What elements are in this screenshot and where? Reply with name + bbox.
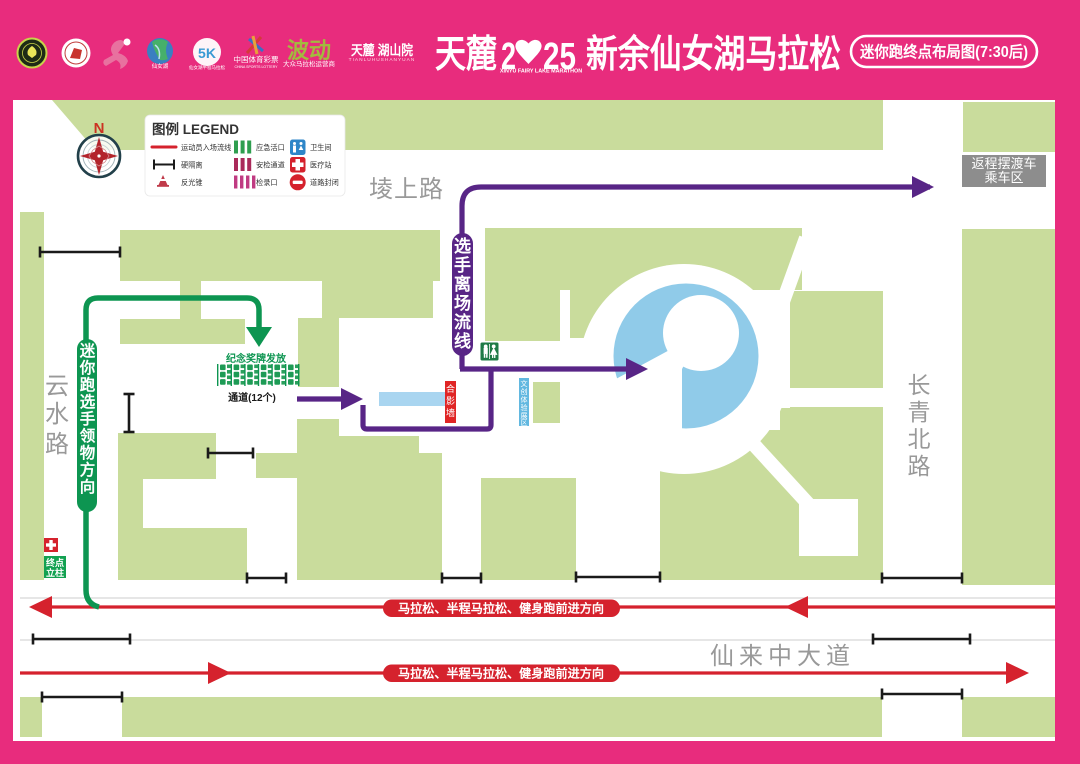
svg-text:手: 手 [80, 409, 96, 428]
svg-text:运动员入场流线: 运动员入场流线 [181, 143, 231, 152]
svg-text:XINYU FAIRY LAKE MARATHON: XINYU FAIRY LAKE MARATHON [500, 69, 582, 75]
svg-text:区: 区 [521, 419, 528, 427]
svg-text:影: 影 [446, 396, 455, 406]
svg-text:立柱: 立柱 [46, 567, 64, 578]
svg-text:波动: 波动 [287, 38, 331, 63]
svg-text:道路封闭: 道路封闭 [310, 178, 339, 187]
svg-text:堎上路: 堎上路 [369, 176, 444, 203]
svg-text:TIANLUHUSHANYUAN: TIANLUHUSHANYUAN [349, 57, 416, 63]
svg-text:场: 场 [454, 294, 471, 313]
svg-text:反光锥: 反光锥 [181, 178, 203, 187]
svg-text:马拉松、半程马拉松、健身跑前进方向: 马拉松、半程马拉松、健身跑前进方向 [398, 666, 604, 681]
svg-text:流: 流 [454, 312, 471, 332]
svg-text:仙来中大道: 仙来中大道 [710, 643, 855, 670]
svg-text:北: 北 [908, 426, 931, 452]
svg-text:CHINA SPORTS LOTTERY: CHINA SPORTS LOTTERY [234, 65, 278, 69]
svg-text:检录口: 检录口 [256, 178, 278, 187]
svg-text:天麓 湖山院: 天麓 湖山院 [351, 42, 413, 58]
svg-text:仙女湖半程马拉松: 仙女湖半程马拉松 [189, 64, 225, 71]
svg-text:新余仙女湖马拉松: 新余仙女湖马拉松 [586, 33, 841, 76]
svg-text:方: 方 [80, 460, 96, 479]
svg-text:迷: 迷 [79, 341, 96, 360]
svg-text:仙女湖: 仙女湖 [152, 62, 169, 70]
svg-text:墙: 墙 [446, 407, 455, 418]
svg-text:图例 LEGEND: 图例 LEGEND [152, 121, 239, 137]
svg-text:医疗站: 医疗站 [310, 161, 332, 170]
svg-text:向: 向 [80, 477, 96, 496]
svg-text:终点: 终点 [45, 557, 64, 568]
svg-text:路: 路 [908, 453, 931, 479]
svg-text:手: 手 [454, 255, 471, 275]
svg-text:大众马拉松运营商: 大众马拉松运营商 [283, 59, 336, 68]
svg-text:天麓: 天麓 [435, 34, 497, 76]
svg-text:选: 选 [454, 237, 471, 256]
svg-text:中国体育彩票: 中国体育彩票 [234, 54, 279, 64]
svg-text:纪念奖牌发放: 纪念奖牌发放 [226, 352, 287, 365]
svg-text:5K: 5K [198, 45, 216, 61]
svg-text:离: 离 [454, 274, 471, 294]
svg-text:线: 线 [454, 331, 471, 351]
svg-text:云: 云 [45, 373, 69, 400]
svg-text:物: 物 [80, 443, 96, 462]
svg-text:文: 文 [521, 379, 528, 388]
svg-text:验: 验 [521, 403, 528, 412]
svg-text:返程摆渡车: 返程摆渡车 [971, 156, 1036, 171]
svg-text:合: 合 [446, 383, 455, 394]
svg-text:安检通道: 安检通道 [256, 161, 285, 170]
svg-text:迷你跑终点布局图(7:30后): 迷你跑终点布局图(7:30后) [859, 42, 1028, 61]
svg-text:长: 长 [908, 372, 931, 398]
svg-text:青: 青 [908, 399, 931, 425]
svg-text:展: 展 [521, 412, 528, 420]
svg-text:你: 你 [79, 358, 96, 377]
svg-text:跑: 跑 [80, 375, 96, 394]
svg-text:应急活口: 应急活口 [256, 143, 285, 152]
svg-text:体: 体 [521, 395, 528, 404]
svg-text:马拉松、半程马拉松、健身跑前进方向: 马拉松、半程马拉松、健身跑前进方向 [398, 601, 604, 616]
svg-text:创: 创 [521, 387, 528, 396]
svg-text:乘车区: 乘车区 [984, 170, 1023, 185]
svg-text:领: 领 [80, 426, 96, 445]
svg-text:水: 水 [45, 401, 69, 428]
svg-text:N: N [94, 120, 105, 137]
svg-text:卫生间: 卫生间 [310, 143, 332, 152]
svg-text:选: 选 [80, 393, 96, 411]
svg-text:硬隔离: 硬隔离 [181, 161, 203, 170]
svg-text:路: 路 [45, 431, 69, 458]
svg-text:通道(12个): 通道(12个) [228, 391, 276, 404]
